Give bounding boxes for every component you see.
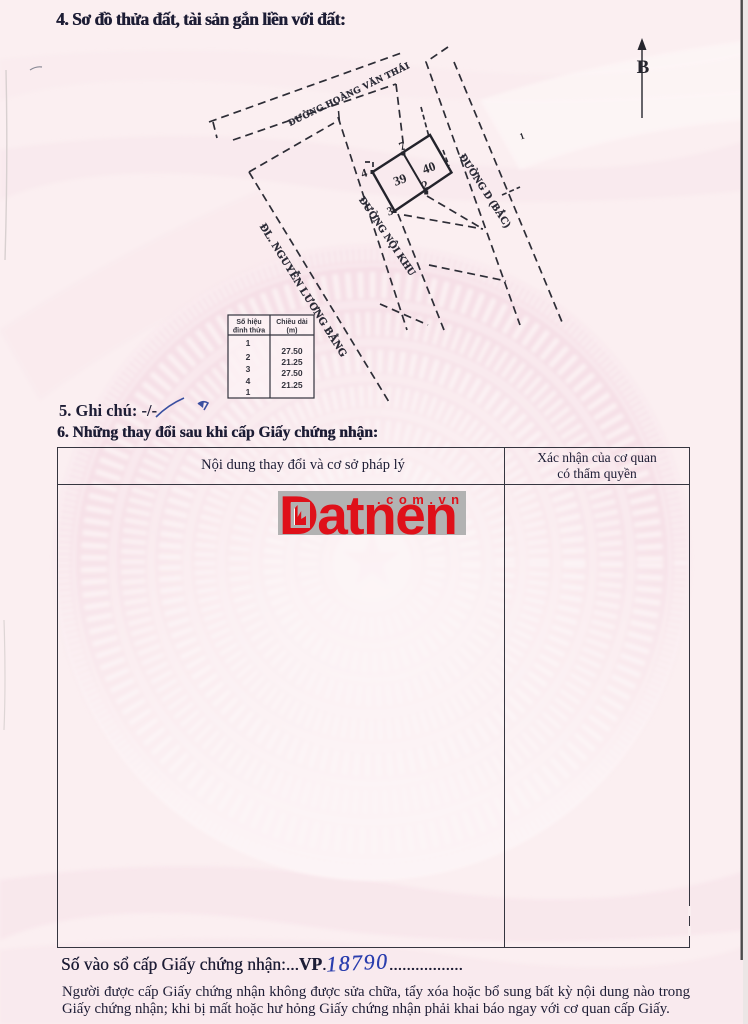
svg-text:đỉnh thửa: đỉnh thửa: [233, 328, 265, 335]
svg-text:7: 7: [397, 138, 407, 153]
svg-text:21.25: 21.25: [281, 357, 303, 367]
svg-text:1: 1: [246, 387, 251, 397]
svg-text:2: 2: [420, 177, 430, 192]
svg-text:(m): (m): [287, 328, 298, 335]
svg-text:39: 39: [391, 170, 409, 189]
svg-text:3: 3: [246, 364, 251, 374]
svg-text:Chiều dài: Chiều dài: [276, 317, 308, 326]
svg-text:ĐƯỜNG HOÀNG VĂN THÁI: ĐƯỜNG HOÀNG VĂN THÁI: [286, 59, 411, 128]
svg-text:1: 1: [246, 338, 251, 348]
svg-text:21.25: 21.25: [281, 380, 303, 390]
svg-text:27.50: 27.50: [281, 346, 303, 356]
svg-text:4: 4: [359, 165, 369, 180]
svg-text:1: 1: [518, 130, 526, 141]
svg-text:B: B: [637, 57, 650, 78]
svg-text:Số hiệu: Số hiệu: [236, 318, 261, 326]
svg-text:2: 2: [246, 352, 251, 362]
svg-text:40: 40: [420, 158, 437, 177]
svg-text:27.50: 27.50: [281, 368, 303, 378]
svg-text:4: 4: [246, 376, 251, 386]
